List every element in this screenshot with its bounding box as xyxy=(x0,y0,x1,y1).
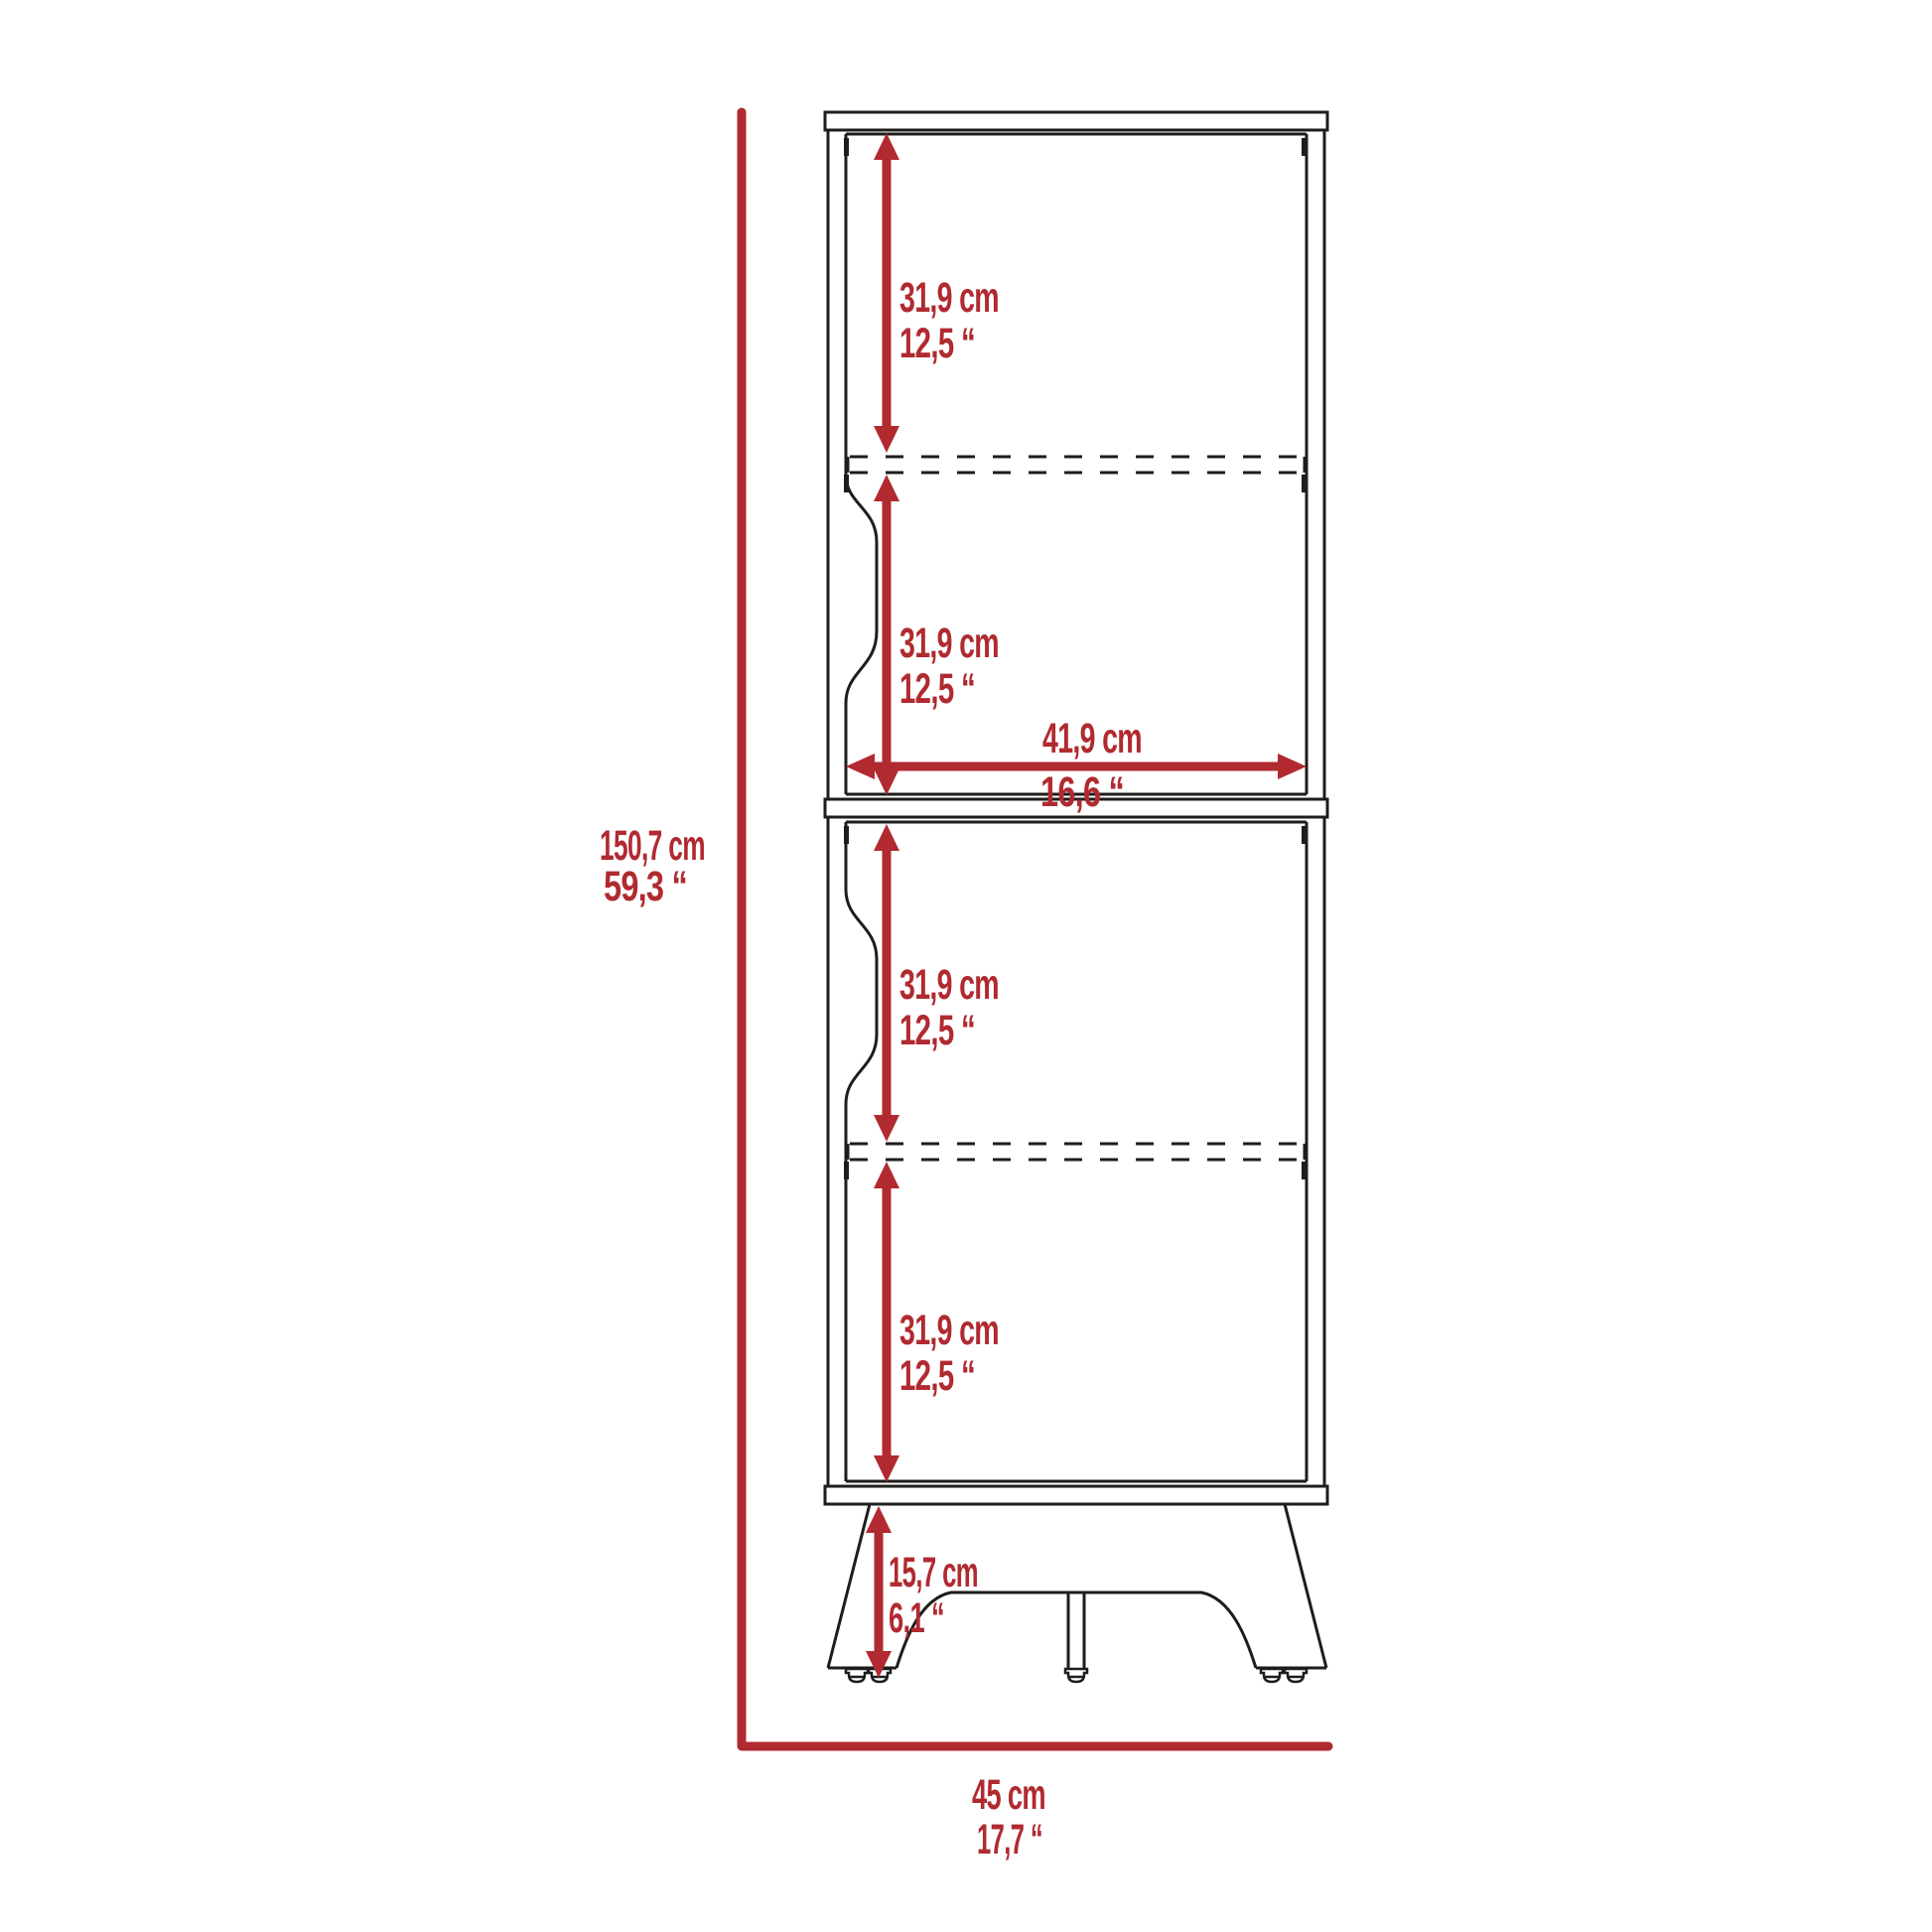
overall-height-inch-label: 59,3 “ xyxy=(604,863,687,910)
dimension-diagram-page: 150,7 cm 59,3 “ 31,9 cm 12,5 “ 31,9 cm 1… xyxy=(0,0,1932,1932)
interior-width-cm-label: 41,9 cm xyxy=(1042,715,1142,762)
right-leg-outer-edge xyxy=(1285,1504,1326,1668)
dimension-arrow-shafts xyxy=(872,157,1281,1656)
upper-shelf-dashed-lines xyxy=(850,457,1303,473)
overall-width-cm-label: 45 cm xyxy=(972,1771,1045,1819)
cabinet-top-panel xyxy=(825,112,1327,130)
cabinet-dimension-diagram: 150,7 cm 59,3 “ 31,9 cm 12,5 “ 31,9 cm 1… xyxy=(0,0,1932,1932)
interior-width-inch-label: 16,6 “ xyxy=(1040,768,1124,816)
leg-height-cm-label: 15,7 cm xyxy=(889,1549,978,1596)
section-3-cm-label: 31,9 cm xyxy=(899,961,999,1009)
leg-rail-curve xyxy=(897,1592,1256,1668)
section-4-inch-label: 12,5 “ xyxy=(899,1352,975,1400)
section-4-cm-label: 31,9 cm xyxy=(899,1307,999,1354)
lower-shelf-dashed-lines xyxy=(850,1144,1303,1160)
overall-width-inch-label: 17,7 “ xyxy=(977,1816,1042,1863)
lower-door-left-edge-with-handle-groove xyxy=(846,822,877,1481)
adjustable-feet xyxy=(846,1669,1307,1682)
upper-door-left-edge-with-handle-groove xyxy=(846,134,877,794)
dimension-labels: 150,7 cm 59,3 “ 31,9 cm 12,5 “ 31,9 cm 1… xyxy=(600,274,1142,1863)
section-2-cm-label: 31,9 cm xyxy=(899,620,999,667)
section-2-inch-label: 12,5 “ xyxy=(899,665,975,713)
cabinet-bottom-panel xyxy=(825,1486,1327,1504)
section-3-inch-label: 12,5 “ xyxy=(899,1007,975,1054)
section-1-cm-label: 31,9 cm xyxy=(899,274,999,322)
leg-height-inch-label: 6,1 “ xyxy=(889,1594,944,1642)
left-leg-outer-edge xyxy=(828,1504,870,1668)
section-1-inch-label: 12,5 “ xyxy=(899,320,975,367)
